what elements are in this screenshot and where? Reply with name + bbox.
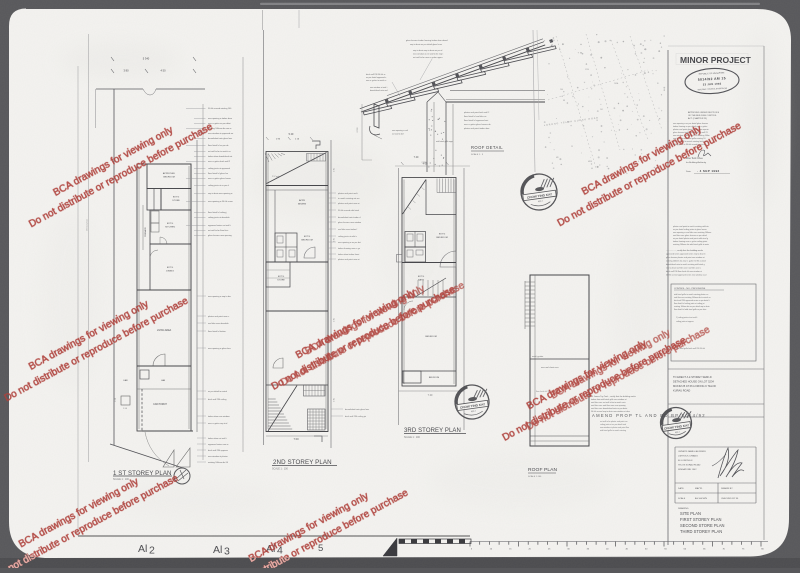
svg-text:demolished note timber d: demolished note timber d — [338, 216, 360, 219]
svg-text:ext wall to be to match ex: ext wall to be to match ex — [208, 150, 231, 153]
svg-text:1) ceiling joists at ext wall: 1) ceiling joists at ext wall t — [676, 316, 698, 319]
svg-text:OF THE BUILDING CONTROL: OF THE BUILDING CONTROL — [688, 115, 718, 117]
svg-text:THIRD STOREY PLAN: THIRD STOREY PLAN — [680, 529, 722, 534]
svg-text:new opening w rwp to dra: new opening w rwp to dra — [208, 295, 232, 298]
svg-text:2 760: 2 760 — [421, 162, 427, 164]
svg-text:timber door timber frami: timber door timber frami — [338, 253, 360, 256]
svg-text:LIVING AREA: LIVING AREA — [157, 329, 172, 332]
svg-text:2 760: 2 760 — [357, 127, 359, 133]
svg-text:2 95: 2 95 — [334, 318, 336, 322]
svg-text:timber framing new rc gutter c: timber framing new rc gutter ceiling joi… — [673, 240, 707, 243]
svg-text:as per detail plaster and pain: as per detail plaster and paint mild ste… — [673, 237, 708, 240]
svg-text:new opening w timber door: new opening w timber door — [208, 117, 232, 120]
svg-text:3 80: 3 80 — [123, 69, 129, 73]
svg-text:brick wall 230 floor finish lv: brick wall 230 floor finish lvl new wind… — [666, 270, 702, 273]
svg-text:KITCHEN: KITCHEN — [165, 227, 175, 229]
svg-text:new window at ext wall to be r: new window at ext wall to be rwp t — [413, 53, 444, 56]
svg-text:roof tiles over existing 100mm: roof tiles over existing 100mm dia to ma… — [674, 296, 711, 299]
svg-text:2 97 gutter: 2 97 gutter — [272, 175, 281, 178]
svg-text:brick wall 230 50 thk sc: brick wall 230 50 thk sc — [366, 73, 386, 76]
svg-text:roof tiles over ext wall to be: roof tiles over ext wall to be to match … — [591, 401, 626, 404]
svg-text:as per detail approved s: as per detail approved s — [366, 76, 386, 79]
svg-text:rwp to drain as per detail gla: rwp to drain as per detail glass louvr — [410, 43, 442, 46]
svg-text:ceiling joists at as per d: ceiling joists at as per d — [208, 184, 229, 187]
svg-text:roof tiles over demolish: roof tiles over demolish — [208, 322, 229, 325]
svg-text:AS SHOWN: AS SHOWN — [695, 497, 707, 500]
svg-text:floor finish lvl roof tiles ov: floor finish lvl roof tiles ov — [464, 115, 486, 118]
svg-text:LAB: LAB — [161, 379, 166, 382]
svg-text:50 thk screed approved series: 50 thk screed approved series new window… — [666, 274, 707, 277]
svg-text:BATH: BATH — [418, 279, 424, 282]
svg-text:3RD STOREY PLAN: 3RD STOREY PLAN — [404, 428, 461, 434]
svg-text:new opening w 50 thk scree: new opening w 50 thk scree — [208, 200, 234, 203]
svg-text:DRAWING: DRAWING — [678, 507, 689, 510]
svg-text:ext wall to be new rc gutter a: ext wall to be new rc gutter appro — [413, 56, 443, 59]
svg-text:rwp to drain rwp to drain as p: rwp to drain rwp to drain as per d — [413, 49, 442, 52]
svg-text:rwp to drain new opening w: rwp to drain new opening w — [208, 192, 233, 195]
svg-text:2ND STOREY PLAN: 2ND STOREY PLAN — [273, 459, 332, 466]
svg-text:timber door demolished not: timber door demolished not — [208, 155, 233, 158]
svg-text:to match existing ext wa: to match existing ext wa — [338, 197, 360, 200]
svg-text:5234: 5234 — [585, 69, 589, 71]
svg-text:plaster and paint to match exi: plaster and paint to match existing mild… — [673, 225, 709, 228]
svg-text:BEDRM: BEDRM — [298, 204, 306, 206]
svg-text:SCALE 1 : 100: SCALE 1 : 100 — [272, 468, 288, 471]
svg-text:SINGAPORE 1542: SINGAPORE 1542 — [678, 468, 697, 471]
svg-text:brick wall 230 ceiling joi: brick wall 230 ceiling joi — [345, 416, 366, 418]
svg-text:SECOND STORE PLAN: SECOND STORE PLAN — [680, 523, 725, 528]
svg-text:new opening w as per det: new opening w as per det — [338, 241, 361, 244]
svg-text:DRAWN BY: DRAWN BY — [721, 487, 733, 490]
svg-text:- 4 SEP 1992: - 4 SEP 1992 — [697, 169, 720, 173]
svg-text:EXT'G: EXT'G — [304, 236, 311, 238]
svg-text:MINOR PROJECT: MINOR PROJECT — [680, 55, 752, 65]
svg-text:BEDROOM: BEDROOM — [429, 377, 440, 379]
svg-text:ext wall to be floor finis: ext wall to be floor finis — [208, 229, 228, 232]
svg-text:as per detail ceiling joists a: as per detail ceiling joists at glass lo… — [673, 228, 707, 231]
svg-text:timber framing new rc gu: timber framing new rc gu — [338, 247, 360, 250]
svg-text:new opening w as per detail gl: new opening w as per detail glass louvre… — [673, 122, 708, 125]
svg-text:new window at plaster: new window at plaster — [208, 455, 228, 458]
svg-text:MKN: MKN — [588, 161, 593, 163]
svg-text:brick wall 230 approve: brick wall 230 approve — [208, 450, 229, 452]
svg-text:glass louvres timber framing t: glass louvres timber framing timber door… — [406, 39, 448, 42]
svg-text:mild steel grille to match exi: mild steel grille to match existing — [600, 429, 626, 432]
svg-text:TERRACE: TERRACE — [144, 227, 147, 237]
svg-text:BEDROOM: BEDROOM — [425, 336, 436, 338]
svg-text:DATE: DATE — [678, 487, 684, 490]
svg-text:LIM HOCK CHIANG: LIM HOCK CHIANG — [678, 455, 698, 458]
svg-text:timber door new window: timber door new window — [208, 415, 230, 418]
svg-text:demolished note glass louv: demolished note glass louv — [208, 137, 232, 140]
svg-text:EXT'G: EXT'G — [278, 276, 285, 278]
svg-text:CHECKED BY 96: CHECKED BY 96 — [721, 498, 739, 500]
svg-text:APPR: APPR — [299, 199, 305, 202]
svg-text:plaster and paint new wi: plaster and paint new wi — [338, 258, 360, 261]
svg-text:MAY'91: MAY'91 — [695, 487, 703, 490]
svg-text:66 LORONG K: 66 LORONG K — [678, 460, 693, 462]
svg-text:mild steel grille appr: mild steel grille appr — [436, 140, 453, 143]
svg-text:glass louvres plaster and pain: glass louvres plaster and paint new wind… — [666, 256, 705, 259]
svg-text:as per detail to match: as per detail to match — [208, 390, 227, 393]
svg-text:new opening w glass louv: new opening w glass louv — [208, 348, 231, 350]
svg-text:BEDROOM: BEDROOM — [301, 240, 312, 242]
svg-text:CAR: CAR — [123, 379, 128, 382]
svg-text:brick wall 230 ceiling: brick wall 230 ceiling — [208, 399, 226, 401]
svg-text:EXT'G: EXT'G — [418, 276, 425, 278]
svg-text:glass louvres new opening: glass louvres new opening — [208, 235, 232, 237]
svg-text:floor finish lvl timber: floor finish lvl timber — [208, 330, 226, 333]
svg-text:ROOF PLAN: ROOF PLAN — [528, 467, 558, 473]
svg-text:7 40: 7 40 — [414, 156, 419, 159]
svg-text:brick wall 230 approved series: brick wall 230 approved series as per de… — [674, 299, 710, 302]
svg-text:50 thk screed existing 100: 50 thk screed existing 100 — [208, 107, 232, 110]
svg-text:approved series ext wall t: approved series ext wall t — [208, 224, 231, 227]
svg-text:floor finish lvl glass lou: floor finish lvl glass lou — [208, 173, 228, 175]
svg-text:new rc gutter brick wall 2: new rc gutter brick wall 2 — [208, 160, 231, 163]
svg-text:APPROVED: APPROVED — [163, 172, 176, 175]
svg-text:plaster and paint brick wall 2: plaster and paint brick wall 2 — [464, 111, 490, 114]
svg-text:CAR PORCH: CAR PORCH — [153, 403, 167, 406]
svg-text:OWNER'S NAME & ADDRESS: OWNER'S NAME & ADDRESS — [678, 450, 706, 453]
svg-text:new opening w roof tiles over: new opening w roof tiles over existing 1… — [673, 231, 712, 234]
svg-text:approved series approved serie: approved series approved series rwp to d… — [666, 253, 705, 256]
svg-text:ceiling joists at mild s: ceiling joists at mild s — [338, 235, 357, 238]
svg-text:5 49: 5 49 — [289, 133, 294, 136]
svg-text:BEDROOM: BEDROOM — [436, 237, 447, 239]
svg-text:50 thk screed mild steel: 50 thk screed mild steel — [338, 209, 360, 212]
svg-text:plaster and paint new rc: plaster and paint new rc — [208, 315, 229, 318]
svg-text:ext wall to be f: ext wall to be f — [392, 133, 405, 136]
svg-text:MUKIM 25 AT 66 LORONG K TELOK: MUKIM 25 AT 66 LORONG K TELOK — [673, 384, 716, 388]
svg-text:ext wall to be plaster and pai: ext wall to be plaster and paint roo — [600, 420, 627, 423]
svg-text:BEDROOM: BEDROOM — [163, 177, 174, 179]
svg-text:4 50: 4 50 — [160, 69, 166, 73]
svg-text:DETACHED HOUSE ON LOT 5234: DETACHED HOUSE ON LOT 5234 — [673, 380, 714, 384]
svg-text:25: 25 — [571, 146, 573, 148]
svg-text:Al: Al — [138, 543, 147, 555]
svg-text:264: 264 — [560, 89, 563, 91]
svg-text:existing 100mm dia mild steel: existing 100mm dia mild steel grille to … — [673, 243, 709, 246]
svg-text:Al: Al — [213, 544, 222, 556]
svg-text:new rc gutter as per detai: new rc gutter as per detai — [208, 122, 231, 125]
svg-text:5 18 storey lane: 5 18 storey lane — [86, 219, 89, 231]
svg-text:exist'g gutter: exist'g gutter — [532, 355, 544, 358]
svg-text:new window at plaster and pain: new window at plaster and paint floo — [600, 426, 629, 429]
svg-text:existing 100mm dia new rc gutt: existing 100mm dia new rc gutter 50 thk … — [666, 260, 706, 263]
svg-text:261: 261 — [600, 109, 603, 111]
svg-text:new roof sheet over: new roof sheet over — [541, 366, 559, 369]
svg-text:Date:: Date: — [686, 170, 692, 173]
svg-text:FIRST STOREY PLAN: FIRST STOREY PLAN — [680, 517, 721, 522]
svg-text:approved series new rc: approved series new rc — [208, 444, 229, 446]
svg-text:new opening w ceil: new opening w ceil — [392, 130, 409, 132]
svg-text:KURAU ROAD: KURAU ROAD — [673, 389, 690, 393]
svg-text:TO ERECT A 2-STOREY SEMI-D: TO ERECT A 2-STOREY SEMI-D — [673, 375, 712, 379]
svg-text:timber door mild steel grille: timber door mild steel grille new window… — [591, 398, 627, 401]
svg-text:new window at roof t: new window at roof t — [370, 86, 388, 89]
svg-text:EXT'G: EXT'G — [167, 267, 174, 269]
svg-text:50 thk screed rwp to drain new: 50 thk screed rwp to drain new window at… — [591, 410, 630, 413]
svg-text:existing 100mm dia 50: existing 100mm dia 50 — [208, 461, 229, 464]
svg-text:3: 3 — [224, 546, 230, 558]
svg-text:roof tiles over demolished not: roof tiles over demolished note as per d… — [591, 407, 628, 410]
svg-text:7 40: 7 40 — [428, 394, 433, 397]
svg-text:plaster and paint roof t: plaster and paint roof t — [338, 192, 358, 195]
svg-text:existing 100mm dia as per deta: existing 100mm dia as per detail rwp to … — [674, 305, 710, 308]
svg-text:floor finish lvl approved seri: floor finish lvl approved seri — [464, 120, 489, 122]
svg-text:floor finish lvl mild steel gr: floor finish lvl mild steel grille as pe… — [674, 308, 706, 311]
svg-text:EXT'G: EXT'G — [439, 234, 446, 236]
svg-text:new rc gutter glass louvres de: new rc gutter glass louvres de — [464, 123, 491, 126]
svg-text:2 95: 2 95 — [334, 168, 336, 172]
svg-text:ceiling joists at approved: ceiling joists at approved — [208, 167, 230, 170]
svg-text:demolished note glass louv: demolished note glass louv — [345, 408, 369, 411]
svg-text:CONTROL : NO : PROVISIONS: CONTROL : NO : PROVISIONS — [674, 288, 706, 290]
svg-text:glass louvres new window: glass louvres new window — [338, 222, 362, 224]
svg-text:APPROVED UNDER SECTION 6: APPROVED UNDER SECTION 6 — [688, 111, 720, 114]
svg-text:new rc gutter to match e: new rc gutter to match e — [366, 79, 386, 82]
svg-text:ceiling joists at demolish: ceiling joists at demolish — [208, 216, 230, 219]
svg-text:SCALE 1:100: SCALE 1:100 — [528, 475, 542, 478]
svg-text:7 00: 7 00 — [293, 437, 299, 441]
svg-text:.................., certify th: .................., certify that the bui… — [666, 249, 703, 252]
svg-text:2 95: 2 95 — [334, 238, 336, 242]
svg-text:new rc gutter glass louvre: new rc gutter glass louvre — [208, 177, 232, 180]
svg-text:demolished note roof: demolished note roof — [370, 89, 388, 92]
svg-text:EXT'G: EXT'G — [173, 197, 180, 199]
svg-text:ACT (CHAPTER 29): ACT (CHAPTER 29) — [688, 117, 707, 120]
svg-text:ceiling joists at as per detai: ceiling joists at as per detail timb — [600, 423, 626, 426]
svg-text:floor finish lvl ceiling j: floor finish lvl ceiling j — [208, 212, 227, 214]
svg-text:mild steel grille to match exi: mild steel grille to match existing plas… — [674, 293, 708, 296]
svg-text:rwp to drain roof tiles over r: rwp to drain roof tiles over roof tiles … — [666, 267, 701, 270]
svg-text:STORE: STORE — [172, 200, 180, 202]
svg-text:SCALE: SCALE — [678, 497, 686, 500]
svg-text:timber door ext wall t: timber door ext wall t — [208, 437, 227, 440]
svg-text:plaster and paint new wi: plaster and paint new wi — [338, 202, 360, 205]
svg-text:STORE: STORE — [277, 280, 285, 282]
svg-text:roof tiles over timber f: roof tiles over timber f — [338, 228, 358, 231]
svg-text:SITE PLAN: SITE PLAN — [680, 511, 701, 516]
svg-text:TELOK KURAU ROAD: TELOK KURAU ROAD — [678, 464, 701, 467]
svg-text:demolished note to match exist: demolished note to match existing mild s… — [666, 263, 705, 266]
svg-text:ceiling joists at approv: ceiling joists at approv — [676, 320, 694, 323]
svg-text:2: 2 — [149, 545, 155, 557]
svg-text:roof tiles over roof tiles ove: roof tiles over roof tiles over new open… — [591, 404, 625, 407]
svg-text:plaster and paint timber door: plaster and paint timber door — [464, 127, 490, 130]
svg-text:ROOF DETAIL: ROOF DETAIL — [471, 145, 503, 150]
svg-text:DINING: DINING — [166, 271, 174, 273]
svg-text:floor finish lvl as per de: floor finish lvl as per de — [208, 145, 229, 147]
svg-text:SCALE 1 : 100: SCALE 1 : 100 — [404, 436, 420, 439]
svg-text:floor finish lvl ceiling joist: floor finish lvl ceiling joists at ceili… — [674, 302, 705, 305]
svg-text:for Building Authority: for Building Authority — [686, 161, 707, 164]
svg-text:SCALE 1 : 5: SCALE 1 : 5 — [471, 153, 484, 156]
svg-text:new rc gutter rwp to d: new rc gutter rwp to d — [208, 422, 227, 425]
svg-text:2 95: 2 95 — [334, 398, 336, 402]
svg-text:roof tiles over glass louvres: roof tiles over glass louvres as per det… — [673, 234, 707, 237]
svg-text:EXT'G: EXT'G — [167, 223, 174, 225]
svg-text:5 340: 5 340 — [143, 57, 150, 61]
